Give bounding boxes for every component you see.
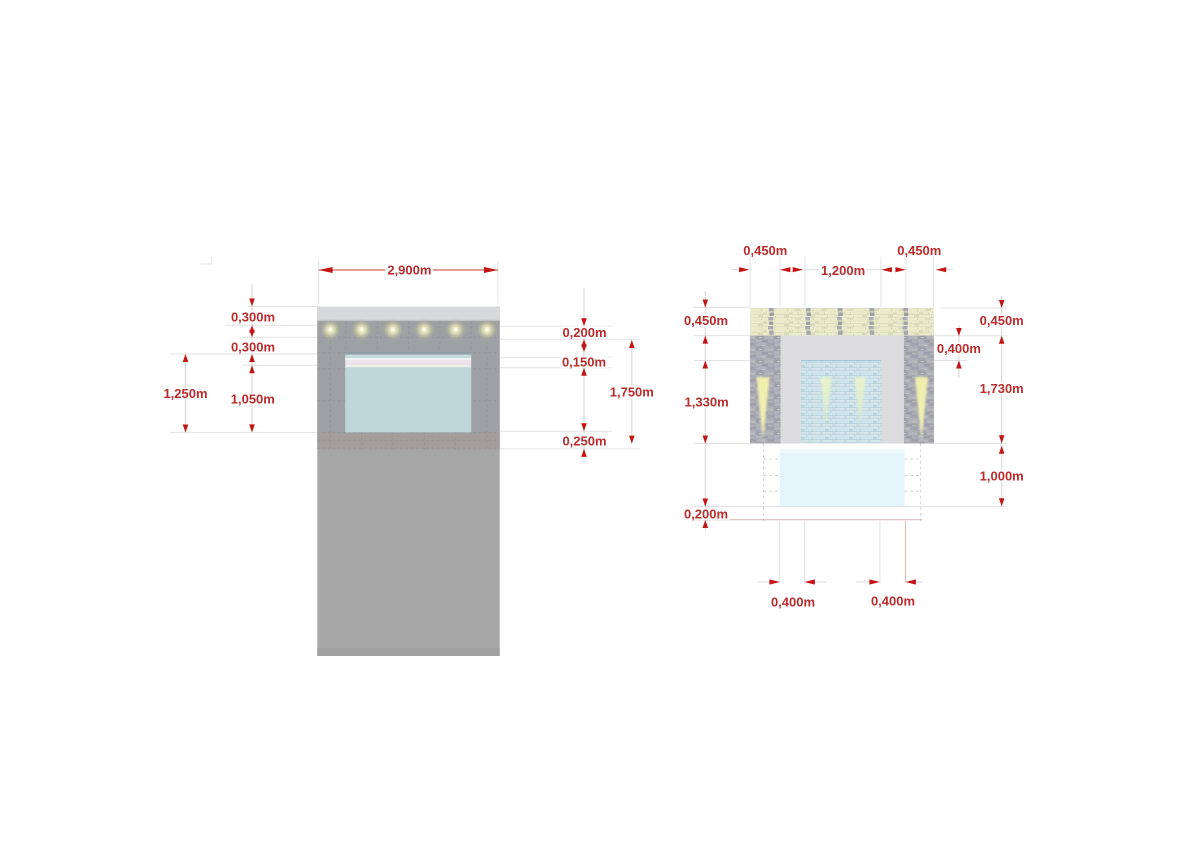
svg-text:1,330m: 1,330m — [685, 394, 729, 409]
svg-text:0,400m: 0,400m — [871, 594, 915, 609]
svg-text:0,450m: 0,450m — [743, 243, 787, 258]
svg-text:0,250m: 0,250m — [562, 433, 606, 448]
svg-text:0,450m: 0,450m — [684, 313, 728, 328]
svg-text:2,900m: 2,900m — [387, 263, 431, 278]
svg-text:1,050m: 1,050m — [231, 392, 275, 407]
svg-text:0,300m: 0,300m — [231, 309, 275, 324]
svg-text:1,250m: 1,250m — [163, 386, 207, 401]
svg-text:0,150m: 0,150m — [562, 354, 606, 369]
svg-text:1,200m: 1,200m — [821, 263, 865, 278]
svg-text:0,450m: 0,450m — [897, 243, 941, 258]
svg-text:0,200m: 0,200m — [562, 325, 606, 340]
svg-text:1,730m: 1,730m — [980, 381, 1024, 396]
svg-text:0,400m: 0,400m — [937, 341, 981, 356]
svg-text:0,450m: 0,450m — [980, 313, 1024, 328]
svg-text:1,000m: 1,000m — [980, 469, 1024, 484]
svg-text:0,400m: 0,400m — [771, 595, 815, 610]
svg-text:1,750m: 1,750m — [610, 385, 654, 400]
svg-text:0,200m: 0,200m — [684, 506, 728, 521]
svg-text:0,300m: 0,300m — [231, 339, 275, 354]
